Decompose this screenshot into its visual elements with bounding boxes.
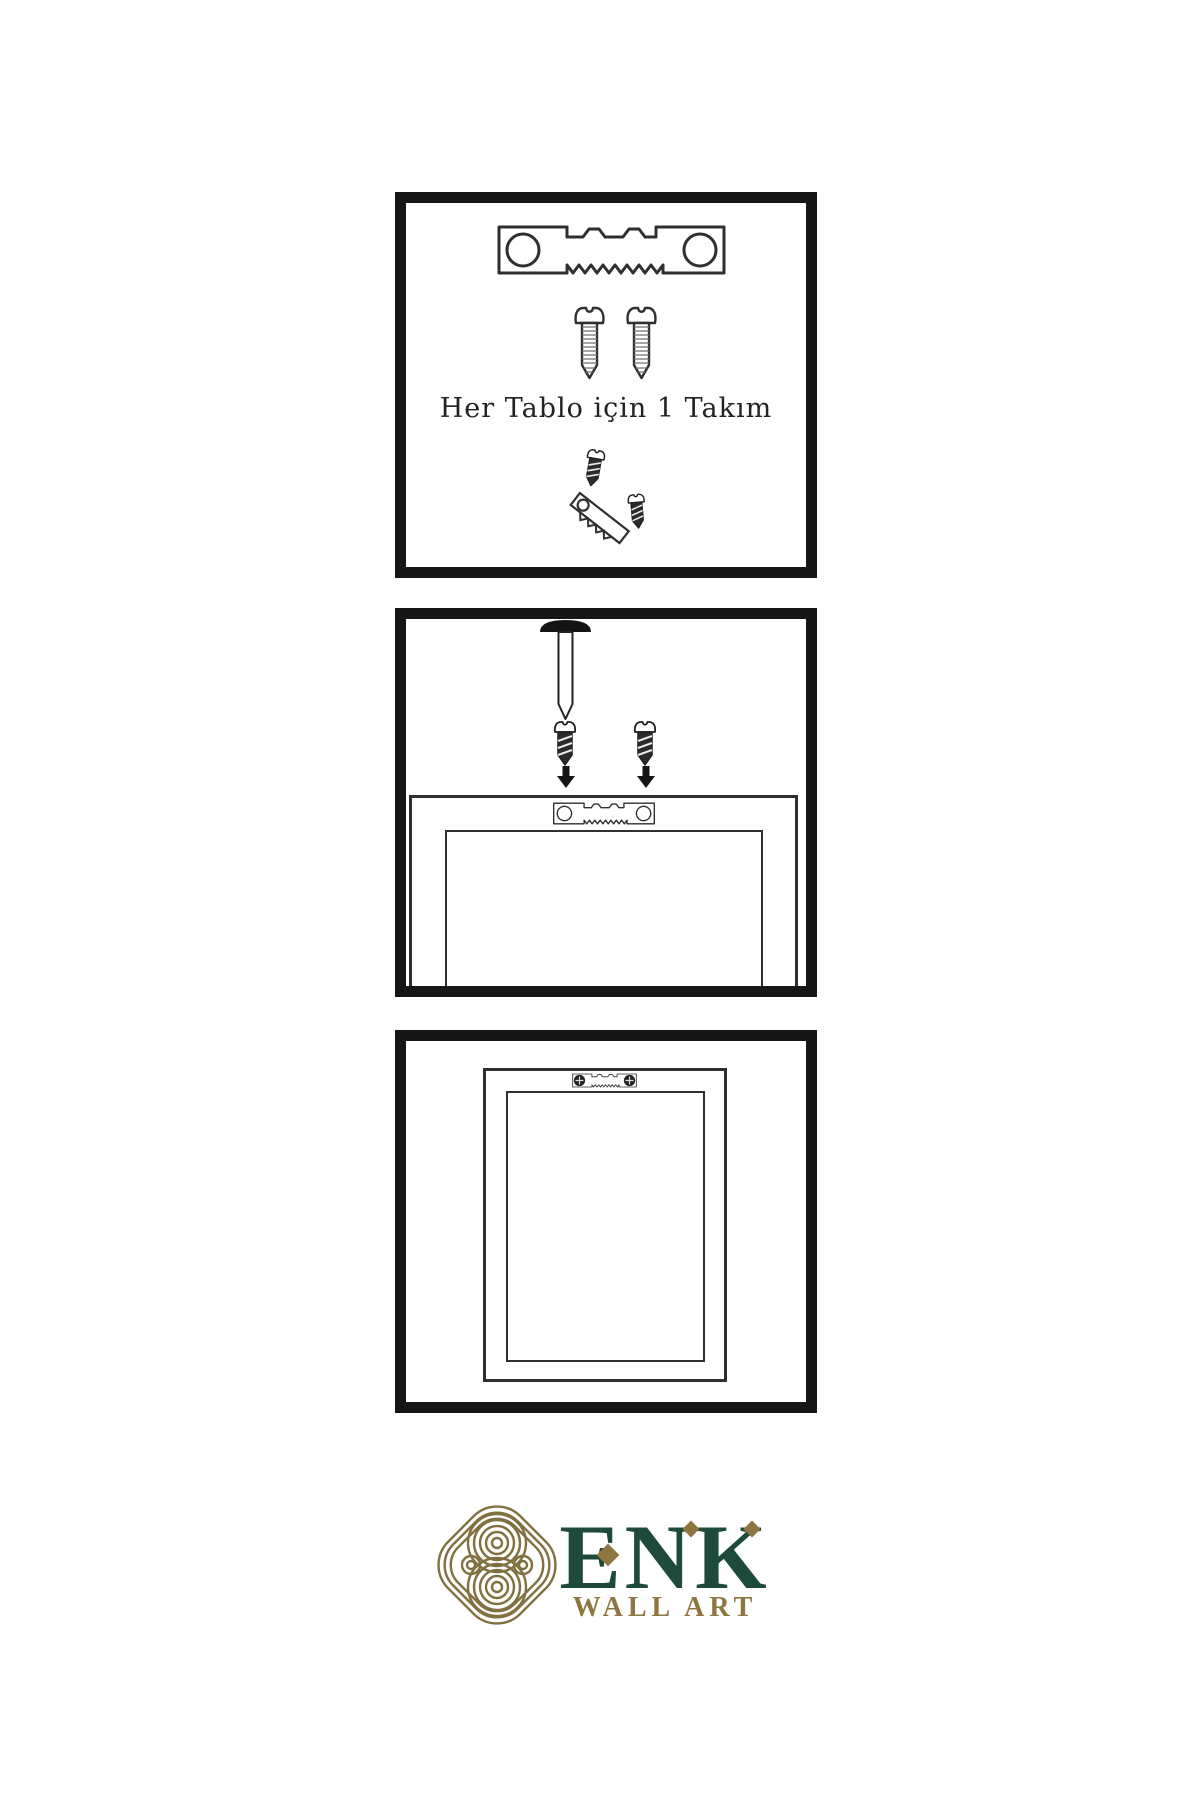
screw-icon: [624, 305, 659, 381]
sawtooth-hanger-icon: [493, 223, 730, 277]
kit-caption: Her Tablo için 1 Takım: [406, 393, 806, 424]
frame-back-inner-outline: [445, 830, 763, 997]
arrow-down-icon: [556, 766, 576, 788]
screw-icon: [572, 305, 607, 381]
instruction-sheet: Her Tablo için 1 Takım: [0, 0, 1200, 1800]
arrow-down-icon: [636, 766, 656, 788]
hanger-with-screws-icon: [571, 1070, 638, 1091]
wall-nail-icon: [538, 619, 593, 721]
brand-tagline: WALL ART: [545, 1594, 785, 1622]
brand-name: ENK: [552, 1511, 778, 1603]
sawtooth-hanger-icon: [551, 800, 657, 827]
screw-into-hanger-icon: [566, 446, 658, 550]
picture-frame-inner-outline: [506, 1091, 705, 1362]
panel-kit: Her Tablo için 1 Takım: [395, 192, 817, 578]
screw-icon: [633, 720, 657, 766]
screw-icon: [553, 720, 577, 766]
panel-result: [395, 1030, 817, 1413]
logo-knot-icon: [433, 1501, 561, 1629]
panel-mount: [395, 608, 817, 997]
